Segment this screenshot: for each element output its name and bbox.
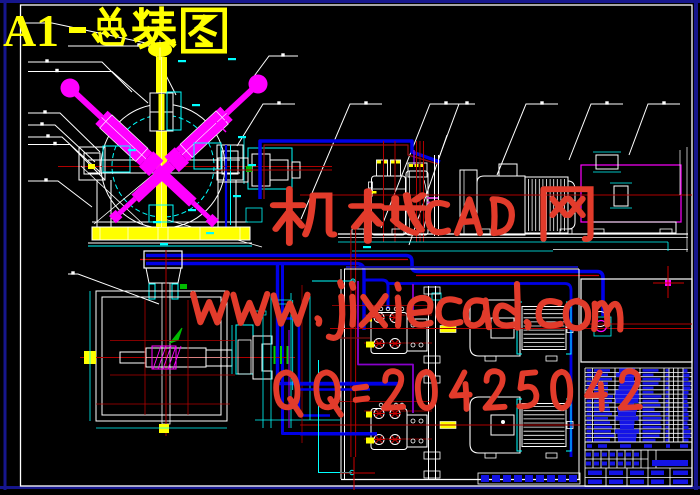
svg-text:A: A — [3, 5, 36, 56]
svg-text:1: 1 — [36, 5, 59, 56]
